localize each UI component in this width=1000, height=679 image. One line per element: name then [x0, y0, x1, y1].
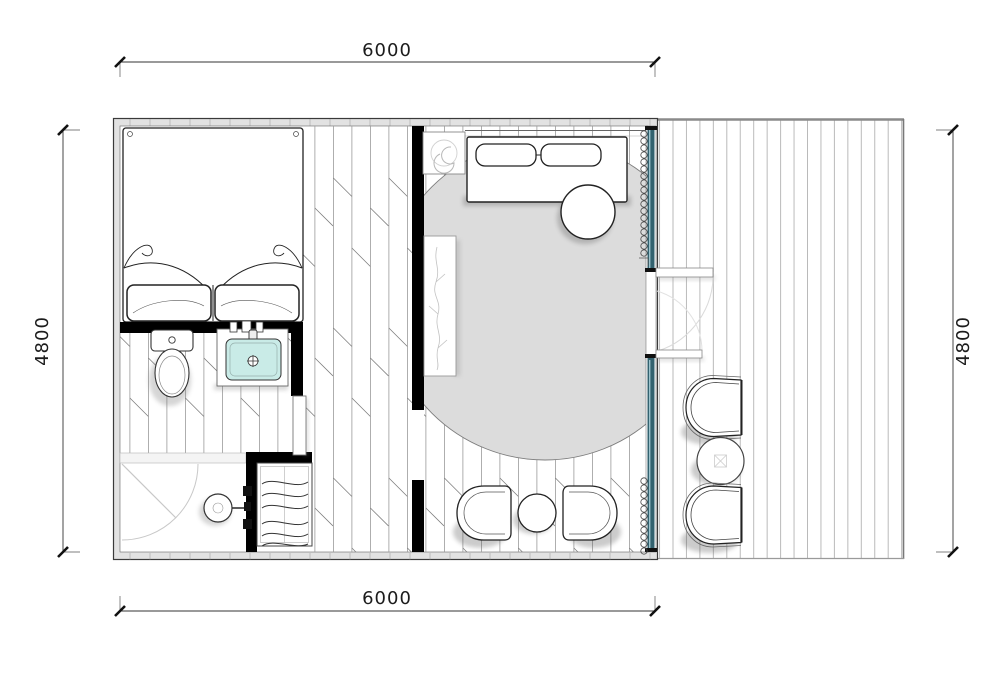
shower-valve [243, 519, 252, 529]
hall-floor [303, 126, 412, 552]
wardrobe-closet [257, 463, 312, 546]
toiletry-item [230, 322, 237, 332]
flush-button [169, 337, 175, 343]
glazing-upper [648, 127, 655, 271]
wall-living-left-lower [412, 480, 424, 552]
round-side-table [561, 185, 615, 239]
shower-threshold [120, 453, 246, 463]
dim-label-left: 4800 [32, 316, 53, 366]
shower-valve [244, 502, 251, 511]
entry-step-lower [656, 350, 702, 358]
dimension-bottom: 6000 [115, 588, 660, 616]
plant-stand [424, 236, 456, 376]
dimension-top: 6000 [115, 40, 660, 77]
dim-label-top: 6000 [362, 40, 412, 61]
shower-head [204, 494, 232, 522]
sofa-cushion [541, 144, 601, 166]
lounge-chair-left [457, 486, 511, 540]
wall-living-left [412, 126, 424, 410]
spiral-side-table [423, 132, 465, 174]
dimension-right: 4800 [936, 125, 974, 557]
toilet [149, 330, 193, 406]
vanity-sink [214, 321, 288, 390]
bathroom-door [293, 396, 306, 455]
dim-label-bottom: 6000 [362, 588, 412, 609]
sofa-cushion [476, 144, 536, 166]
wall-bath-hall [291, 322, 303, 396]
floor-plan-canvas: 6000 6000 4800 4800 [0, 0, 1000, 679]
dim-label-right: 4800 [953, 316, 974, 366]
glazing-lower [648, 358, 655, 551]
entry-step-upper [656, 268, 713, 277]
dimension-left: 4800 [32, 125, 80, 557]
lounge-chair-right [563, 486, 617, 540]
floor-plan-drawing: 6000 6000 4800 4800 [0, 0, 1000, 679]
double-bed [123, 128, 303, 322]
shower-valve [243, 486, 252, 496]
bistro-table [518, 494, 556, 532]
pillow [127, 285, 211, 321]
